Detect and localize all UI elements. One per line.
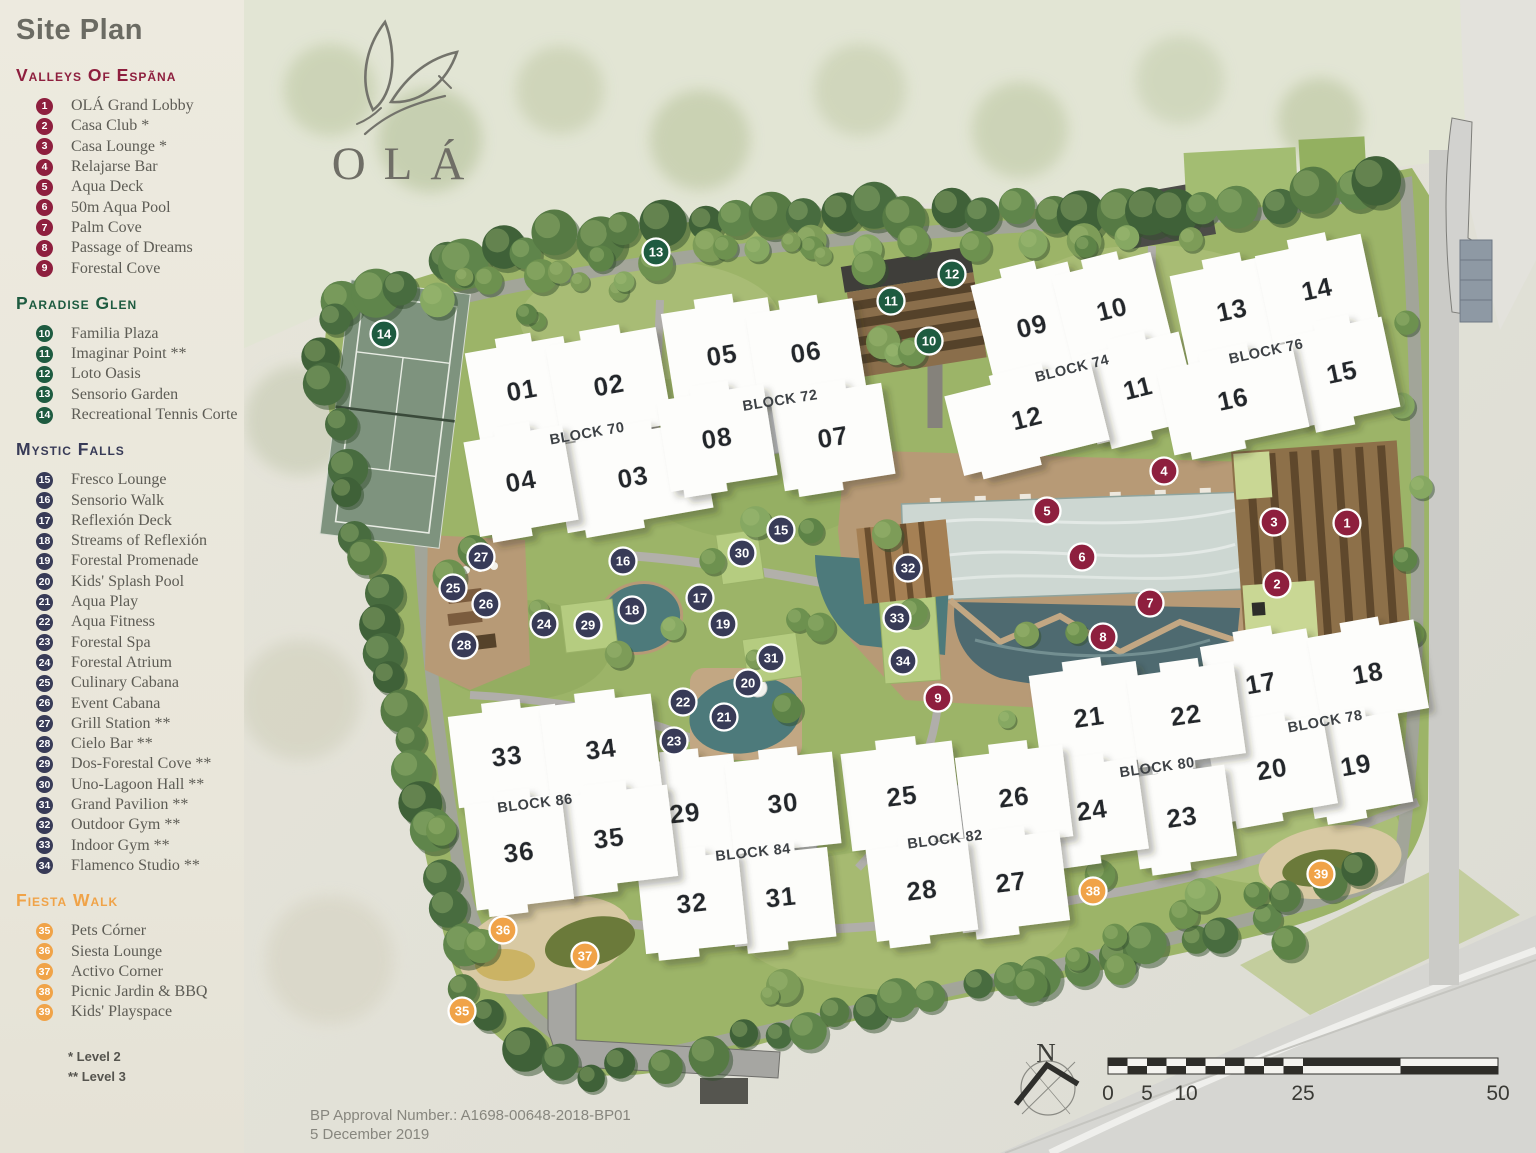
- legend-section-title: Valleys Of Espãna: [16, 65, 244, 86]
- marker-number: 39: [1314, 867, 1328, 882]
- legend-item-label: Aqua Fitness: [71, 613, 155, 631]
- legend-item-label: Casa Club *: [71, 117, 149, 135]
- page-title: Site Plan: [16, 14, 244, 47]
- legend-marker-2: 2: [36, 118, 53, 135]
- legend-item: 38Picnic Jardin & BBQ: [36, 982, 244, 1002]
- map-marker-16: 16: [610, 548, 637, 575]
- legend-marker-25: 25: [36, 675, 53, 692]
- legend-item: 10Familia Plaza: [36, 324, 244, 344]
- legend-item-label: Cielo Bar **: [71, 735, 153, 753]
- legend-item: 1OLÁ Grand Lobby: [36, 96, 244, 116]
- unit-number: 33: [490, 739, 524, 773]
- map-marker-27: 27: [468, 544, 495, 571]
- unit-number: 22: [1169, 698, 1204, 732]
- unit-number: 15: [1324, 354, 1360, 390]
- legend-item-label: Passage of Dreams: [71, 239, 193, 257]
- marker-number: 25: [446, 581, 460, 596]
- legend-marker-29: 29: [36, 756, 53, 773]
- marker-number: 26: [479, 597, 493, 612]
- legend-item-label: Reflexión Deck: [71, 512, 172, 530]
- legend-marker-6: 6: [36, 199, 53, 216]
- map-marker-7: 7: [1137, 590, 1164, 617]
- legend-item: 39Kids' Playspace: [36, 1002, 244, 1022]
- unit-number: 23: [1165, 800, 1200, 834]
- marker-number: 21: [717, 710, 731, 725]
- approval-note: BP Approval Number.: A1698-00648-2018-BP…: [310, 1106, 631, 1144]
- unit-number: 07: [815, 420, 850, 454]
- marker-number: 18: [625, 603, 639, 618]
- map-marker-36: 36: [490, 917, 517, 944]
- legend-marker-37: 37: [36, 963, 53, 980]
- legend-item: 18Streams of Reflexión: [36, 531, 244, 551]
- unit-number: 16: [1215, 381, 1251, 417]
- marker-number: 10: [922, 334, 936, 349]
- map-marker-34: 34: [890, 648, 917, 675]
- unit-number: 03: [615, 460, 651, 495]
- legend-marker-38: 38: [36, 984, 53, 1001]
- legend-item-label: Grand Pavilion **: [71, 796, 188, 814]
- legend-marker-8: 8: [36, 240, 53, 257]
- marker-number: 36: [496, 923, 510, 938]
- marker-number: 9: [934, 691, 941, 706]
- map-marker-24: 24: [531, 611, 558, 638]
- legend-item-label: Kids' Playspace: [71, 1003, 172, 1021]
- marker-number: 29: [581, 618, 595, 633]
- map-marker-12: 12: [939, 261, 966, 288]
- legend-item: 34Flamenco Studio **: [36, 856, 244, 876]
- legend-footnotes: * Level 2 ** Level 3: [16, 1047, 244, 1087]
- legend-item-label: Forestal Spa: [71, 634, 151, 652]
- map-marker-3: 3: [1261, 509, 1288, 536]
- marker-number: 13: [649, 245, 663, 260]
- legend-marker-21: 21: [36, 594, 53, 611]
- legend-section-title: Mystic Falls: [16, 439, 244, 460]
- map-marker-1: 1: [1334, 510, 1361, 537]
- unit-number: 24: [1075, 793, 1110, 827]
- map-marker-17: 17: [687, 585, 714, 612]
- legend-marker-32: 32: [36, 817, 53, 834]
- marker-number: 35: [455, 1004, 469, 1019]
- map-marker-37: 37: [572, 943, 599, 970]
- legend-item: 7Palm Cove: [36, 218, 244, 238]
- legend-marker-22: 22: [36, 614, 53, 631]
- unit-number: 27: [994, 865, 1028, 899]
- legend-marker-3: 3: [36, 138, 53, 155]
- legend-marker-27: 27: [36, 715, 53, 732]
- marker-number: 17: [693, 591, 707, 606]
- legend-item: 21Aqua Play: [36, 592, 244, 612]
- legend-item: 32Outdoor Gym **: [36, 815, 244, 835]
- legend-section-fiesta: Fiesta Walk35Pets Córner36Siesta Lounge3…: [16, 890, 244, 1022]
- legend-item: 12Loto Oasis: [36, 364, 244, 384]
- unit-number: 01: [504, 373, 540, 408]
- map-marker-6: 6: [1069, 544, 1096, 571]
- legend-item-label: Casa Lounge *: [71, 138, 167, 156]
- unit-number: 30: [766, 786, 800, 819]
- legend-panel: Site Plan Valleys Of Espãna1OLÁ Grand Lo…: [0, 0, 244, 1153]
- map-marker-9: 9: [925, 685, 952, 712]
- map-marker-32: 32: [895, 555, 922, 582]
- legend-item: 27Grill Station **: [36, 714, 244, 734]
- marker-number: 24: [537, 617, 552, 632]
- scale-label: 10: [1174, 1082, 1197, 1105]
- map-marker-14: 14: [371, 321, 398, 348]
- map-marker-26: 26: [473, 591, 500, 618]
- legend-item: 37Activo Corner: [36, 962, 244, 982]
- unit-number: 17: [1243, 666, 1279, 701]
- map-marker-33: 33: [884, 605, 911, 632]
- legend-item-label: Flamenco Studio **: [71, 857, 200, 875]
- legend-item: 16Sensorio Walk: [36, 490, 244, 510]
- map-marker-25: 25: [440, 575, 467, 602]
- marker-number: 16: [616, 554, 630, 569]
- legend-marker-35: 35: [36, 923, 53, 940]
- marker-number: 20: [741, 676, 755, 691]
- map-marker-13: 13: [643, 239, 670, 266]
- map-marker-23: 23: [661, 728, 688, 755]
- map-marker-5: 5: [1034, 498, 1061, 525]
- legend-item-label: Relajarse Bar: [71, 158, 158, 176]
- legend-item-label: 50m Aqua Pool: [71, 199, 171, 217]
- legend-marker-19: 19: [36, 553, 53, 570]
- legend-marker-10: 10: [36, 325, 53, 342]
- legend-section-title: Fiesta Walk: [16, 890, 244, 911]
- north-arrow: N: [1016, 1038, 1078, 1115]
- legend-item: 25Culinary Cabana: [36, 673, 244, 693]
- site-plan-page: 0102030405060708091011121314151617181920…: [0, 0, 1536, 1153]
- map-marker-8: 8: [1090, 624, 1117, 651]
- legend-item-label: Outdoor Gym **: [71, 816, 180, 834]
- legend-marker-28: 28: [36, 736, 53, 753]
- legend-marker-31: 31: [36, 797, 53, 814]
- legend-marker-1: 1: [36, 98, 53, 115]
- legend-marker-11: 11: [36, 346, 53, 363]
- map-marker-28: 28: [451, 632, 478, 659]
- marker-number: 30: [735, 546, 749, 561]
- legend-marker-17: 17: [36, 512, 53, 529]
- unit-number: 06: [788, 335, 823, 369]
- legend-item: 19Forestal Promenade: [36, 551, 244, 571]
- marker-number: 23: [667, 734, 681, 749]
- approval-date: 5 December 2019: [310, 1125, 631, 1144]
- legend-item: 36Siesta Lounge: [36, 941, 244, 961]
- legend-marker-9: 9: [36, 260, 53, 277]
- legend-marker-13: 13: [36, 386, 53, 403]
- scale-label: 0: [1102, 1082, 1114, 1105]
- unit-number: 21: [1072, 700, 1107, 734]
- legend-item: 30Uno-Lagoon Hall **: [36, 775, 244, 795]
- legend-item-label: Recreational Tennis Corte: [71, 406, 238, 424]
- unit-number: 08: [699, 421, 734, 455]
- legend-item: 15Fresco Lounge: [36, 470, 244, 490]
- legend-item: 11Imaginar Point **: [36, 344, 244, 364]
- legend-item: 8Passage of Dreams: [36, 238, 244, 258]
- legend-item-label: Dos-Forestal Cove **: [71, 755, 211, 773]
- legend-marker-33: 33: [36, 837, 53, 854]
- unit-number: 14: [1299, 271, 1335, 307]
- unit-number: 19: [1338, 748, 1374, 783]
- map-marker-22: 22: [670, 689, 697, 716]
- unit-number: 32: [675, 886, 709, 919]
- unit-number: 20: [1254, 752, 1290, 787]
- legend-item: 650m Aqua Pool: [36, 197, 244, 217]
- unit-number: 31: [764, 880, 798, 913]
- unit-number: 29: [668, 796, 702, 829]
- scale-label: 5: [1141, 1082, 1153, 1105]
- legend-marker-12: 12: [36, 366, 53, 383]
- map-marker-21: 21: [711, 704, 738, 731]
- marker-number: 6: [1078, 550, 1085, 565]
- marker-number: 34: [896, 654, 911, 669]
- map-marker-31: 31: [758, 645, 785, 672]
- legend-item-label: Activo Corner: [71, 963, 163, 981]
- marker-number: 4: [1160, 464, 1168, 479]
- map-marker-4: 4: [1151, 458, 1178, 485]
- legend-item-label: Aqua Deck: [71, 178, 143, 196]
- legend-item-label: Sensorio Garden: [71, 386, 178, 404]
- legend-item-label: Indoor Gym **: [71, 837, 170, 855]
- legend-item-label: Pets Córner: [71, 922, 146, 940]
- marker-number: 14: [377, 327, 392, 342]
- legend-item-label: Palm Cove: [71, 219, 142, 237]
- marker-number: 7: [1146, 596, 1153, 611]
- legend-marker-18: 18: [36, 533, 53, 550]
- legend-marker-14: 14: [36, 407, 53, 424]
- map-marker-15: 15: [768, 517, 795, 544]
- legend-marker-16: 16: [36, 492, 53, 509]
- marker-number: 27: [474, 550, 488, 565]
- legend-marker-34: 34: [36, 857, 53, 874]
- marker-number: 15: [774, 523, 788, 538]
- marker-number: 11: [884, 294, 898, 309]
- legend-item-label: Forestal Promenade: [71, 552, 199, 570]
- unit-number: 02: [591, 368, 627, 403]
- map-marker-30: 30: [729, 540, 756, 567]
- legend-marker-24: 24: [36, 654, 53, 671]
- legend-marker-7: 7: [36, 219, 53, 236]
- legend-item-label: Familia Plaza: [71, 325, 159, 343]
- legend-item-label: Siesta Lounge: [71, 943, 162, 961]
- approval-number: BP Approval Number.: A1698-00648-2018-BP…: [310, 1106, 631, 1125]
- legend-item: 2Casa Club *: [36, 116, 244, 136]
- map-marker-35: 35: [449, 998, 476, 1025]
- legend-item-label: Forestal Atrium: [71, 654, 172, 672]
- legend-item: 23Forestal Spa: [36, 633, 244, 653]
- marker-number: 8: [1099, 630, 1106, 645]
- legend-marker-15: 15: [36, 472, 53, 489]
- legend-section-valleys: Valleys Of Espãna1OLÁ Grand Lobby2Casa C…: [16, 65, 244, 279]
- unit-number: 18: [1350, 656, 1386, 691]
- marker-number: 5: [1043, 504, 1050, 519]
- legend-sections: Valleys Of Espãna1OLÁ Grand Lobby2Casa C…: [16, 65, 244, 1023]
- legend-item-label: Fresco Lounge: [71, 471, 167, 489]
- unit-number: 05: [704, 338, 739, 372]
- footnote-level-2: * Level 2: [68, 1047, 244, 1067]
- legend-item-label: Picnic Jardin & BBQ: [71, 983, 207, 1001]
- marker-number: 19: [716, 617, 730, 632]
- marker-number: 1: [1343, 516, 1350, 531]
- legend-item-label: Grill Station **: [71, 715, 171, 733]
- scale-label: 50: [1486, 1082, 1509, 1105]
- legend-item: 24Forestal Atrium: [36, 653, 244, 673]
- legend-marker-30: 30: [36, 776, 53, 793]
- map-marker-18: 18: [619, 597, 646, 624]
- map-marker-10: 10: [916, 328, 943, 355]
- unit-number: 13: [1214, 292, 1250, 328]
- legend-item: 29Dos-Forestal Cove **: [36, 754, 244, 774]
- legend-marker-26: 26: [36, 695, 53, 712]
- marker-number: 2: [1273, 577, 1280, 592]
- map-marker-19: 19: [710, 611, 737, 638]
- unit-number: 04: [503, 464, 539, 499]
- legend-item: 35Pets Córner: [36, 921, 244, 941]
- legend-marker-23: 23: [36, 634, 53, 651]
- legend-marker-39: 39: [36, 1004, 53, 1021]
- legend-item-label: OLÁ Grand Lobby: [71, 97, 194, 115]
- legend-item-label: Uno-Lagoon Hall **: [71, 776, 204, 794]
- legend-marker-5: 5: [36, 179, 53, 196]
- legend-item: 17Reflexión Deck: [36, 511, 244, 531]
- unit-number: 34: [584, 732, 618, 766]
- scale-label: 25: [1291, 1082, 1314, 1105]
- marker-number: 38: [1086, 884, 1100, 899]
- legend-section-mystic: Mystic Falls15Fresco Lounge16Sensorio Wa…: [16, 439, 244, 876]
- legend-item-label: Event Cabana: [71, 695, 160, 713]
- ola-logo: OLÁ: [288, 16, 508, 191]
- marker-number: 22: [676, 695, 690, 710]
- marker-number: 12: [945, 267, 959, 282]
- legend-item: 3Casa Lounge *: [36, 137, 244, 157]
- legend-marker-20: 20: [36, 573, 53, 590]
- legend-item: 9Forestal Cove: [36, 258, 244, 278]
- logo-leaves-icon: [323, 16, 473, 138]
- legend-item-label: Aqua Play: [71, 593, 138, 611]
- unit-number: 36: [502, 835, 536, 869]
- legend-item-label: Forestal Cove: [71, 260, 160, 278]
- legend-item: 4Relajarse Bar: [36, 157, 244, 177]
- legend-item: 5Aqua Deck: [36, 177, 244, 197]
- map-marker-39: 39: [1308, 861, 1335, 888]
- legend-marker-36: 36: [36, 943, 53, 960]
- marker-number: 32: [901, 561, 915, 576]
- unit-number: 35: [592, 821, 626, 855]
- footnote-level-3: ** Level 3: [68, 1067, 244, 1087]
- legend-item-label: Loto Oasis: [71, 365, 141, 383]
- unit-number: 28: [905, 873, 939, 907]
- legend-section-paradise: Paradise Glen10Familia Plaza11Imaginar P…: [16, 293, 244, 425]
- legend-item-label: Kids' Splash Pool: [71, 573, 184, 591]
- legend-item: 14Recreational Tennis Corte: [36, 405, 244, 425]
- marker-number: 28: [457, 638, 471, 653]
- legend-item-label: Sensorio Walk: [71, 492, 164, 510]
- legend-item: 13Sensorio Garden: [36, 385, 244, 405]
- legend-item: 31Grand Pavilion **: [36, 795, 244, 815]
- legend-marker-4: 4: [36, 159, 53, 176]
- marker-number: 31: [764, 651, 778, 666]
- legend-item-label: Culinary Cabana: [71, 674, 179, 692]
- legend-item: 22Aqua Fitness: [36, 612, 244, 632]
- legend-section-title: Paradise Glen: [16, 293, 244, 314]
- marker-number: 3: [1270, 515, 1277, 530]
- unit-number: 25: [885, 779, 919, 813]
- legend-item: 28Cielo Bar **: [36, 734, 244, 754]
- legend-item: 20Kids' Splash Pool: [36, 572, 244, 592]
- logo-wordmark: OLÁ: [306, 137, 508, 191]
- legend-item: 33Indoor Gym **: [36, 836, 244, 856]
- marker-number: 37: [578, 949, 592, 964]
- map-marker-38: 38: [1080, 878, 1107, 905]
- marker-number: 33: [890, 611, 904, 626]
- map-marker-20: 20: [735, 670, 762, 697]
- legend-item: 26Event Cabana: [36, 693, 244, 713]
- legend-item-label: Streams of Reflexión: [71, 532, 207, 550]
- map-marker-11: 11: [878, 288, 905, 315]
- map-marker-2: 2: [1264, 571, 1291, 598]
- unit-number: 26: [997, 780, 1031, 814]
- map-marker-29: 29: [575, 612, 602, 639]
- legend-item-label: Imaginar Point **: [71, 345, 187, 363]
